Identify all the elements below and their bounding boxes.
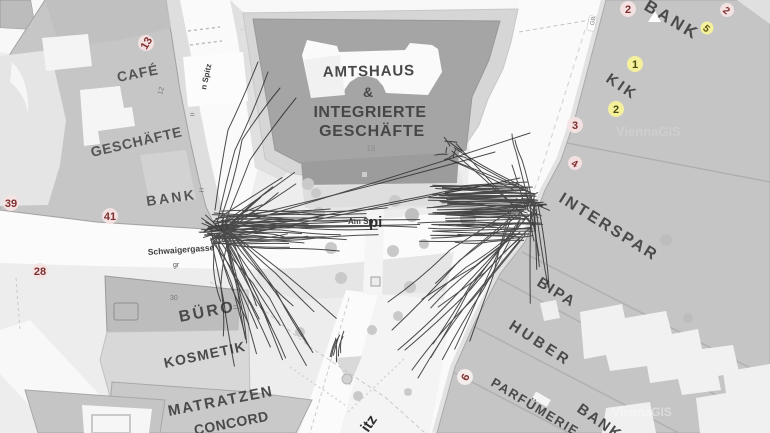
- svg-text:&: &: [363, 84, 373, 100]
- svg-text:ViennaGIS: ViennaGIS: [616, 124, 681, 139]
- svg-text:18: 18: [367, 144, 376, 153]
- svg-text:AMTSHAUS: AMTSHAUS: [323, 62, 415, 81]
- svg-text:pi: pi: [369, 214, 382, 231]
- svg-text:41: 41: [104, 211, 116, 223]
- svg-text:gr: gr: [173, 262, 180, 269]
- svg-text:2: 2: [613, 104, 619, 116]
- svg-text:28: 28: [34, 266, 46, 278]
- svg-text:30: 30: [170, 295, 178, 302]
- svg-text:ViennaGIS: ViennaGIS: [612, 405, 672, 419]
- svg-text:3: 3: [572, 120, 578, 132]
- svg-text:1: 1: [632, 59, 638, 71]
- svg-text:=: =: [199, 185, 204, 195]
- svg-text:GESCHÄFTE: GESCHÄFTE: [319, 122, 425, 140]
- svg-text:39: 39: [5, 198, 17, 210]
- svg-text:INTEGRIERTE: INTEGRIERTE: [313, 104, 426, 121]
- svg-text:=: =: [190, 110, 195, 119]
- svg-text:2: 2: [625, 4, 631, 16]
